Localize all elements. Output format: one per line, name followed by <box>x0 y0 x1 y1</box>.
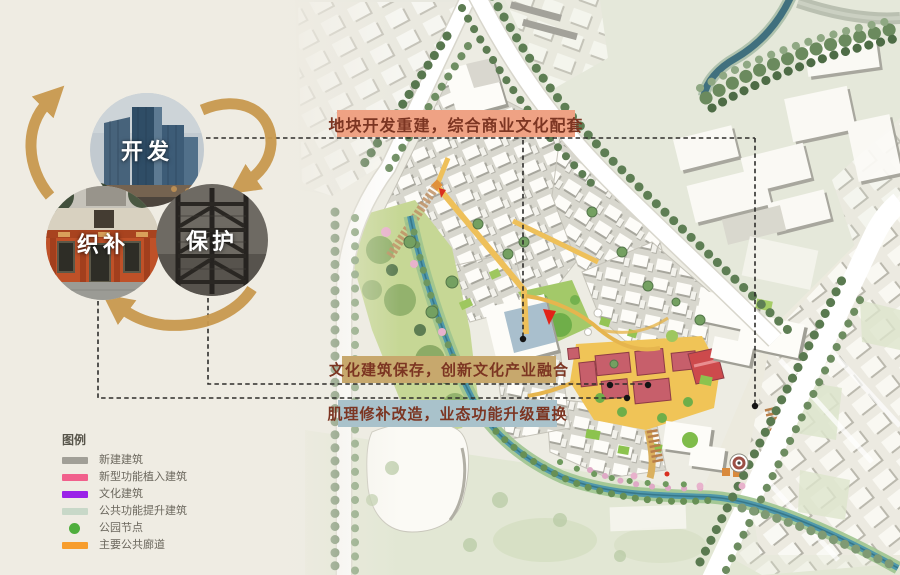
annotation-bottom: 肌理修补改造，业态功能升级置换 <box>338 400 557 427</box>
legend-label: 主要公共廊道 <box>99 540 165 550</box>
legend-item-new-function-buildings: 新型功能植入建筑 <box>62 472 187 482</box>
legend-title: 图例 <box>62 431 187 448</box>
legend-swatch-main-corridors <box>62 542 88 549</box>
legend-swatch-new-function-buildings <box>62 474 88 481</box>
legend-item-new-buildings: 新建建筑 <box>62 455 187 465</box>
map-left-fade <box>270 0 400 575</box>
cycle-node-mend: 织补 <box>46 186 160 300</box>
legend-swatch-new-buildings <box>62 457 88 464</box>
legend-item-cultural-buildings: 文化建筑 <box>62 489 187 499</box>
legend-swatch-park-nodes <box>69 523 80 534</box>
legend-label: 文化建筑 <box>99 489 143 499</box>
legend: 图例 新建建筑 新型功能植入建筑 文化建筑 公共功能提升建筑 公园节点 主要公共… <box>62 431 187 557</box>
cycle-node-protect: 保护 <box>156 184 268 296</box>
cycle-node-protect-label: 保护 <box>156 184 268 296</box>
annotation-top: 地块开发重建，综合商业文化配套 <box>337 110 575 137</box>
legend-swatch-cultural-buildings <box>62 491 88 498</box>
legend-label: 公共功能提升建筑 <box>99 506 187 516</box>
annotation-middle: 文化建筑保存，创新文化产业融合 <box>342 356 556 383</box>
urban-renewal-diagram: 开发 织补 <box>0 0 900 575</box>
legend-item-park-nodes: 公园节点 <box>62 523 187 533</box>
legend-item-public-upgrade-buildings: 公共功能提升建筑 <box>62 506 187 516</box>
legend-label: 新建建筑 <box>99 455 143 465</box>
legend-label: 公园节点 <box>99 523 143 533</box>
legend-label: 新型功能植入建筑 <box>99 472 187 482</box>
legend-item-main-corridors: 主要公共廊道 <box>62 540 187 550</box>
cycle-node-mend-label: 织补 <box>46 186 160 300</box>
legend-swatch-public-upgrade-buildings <box>62 508 88 515</box>
